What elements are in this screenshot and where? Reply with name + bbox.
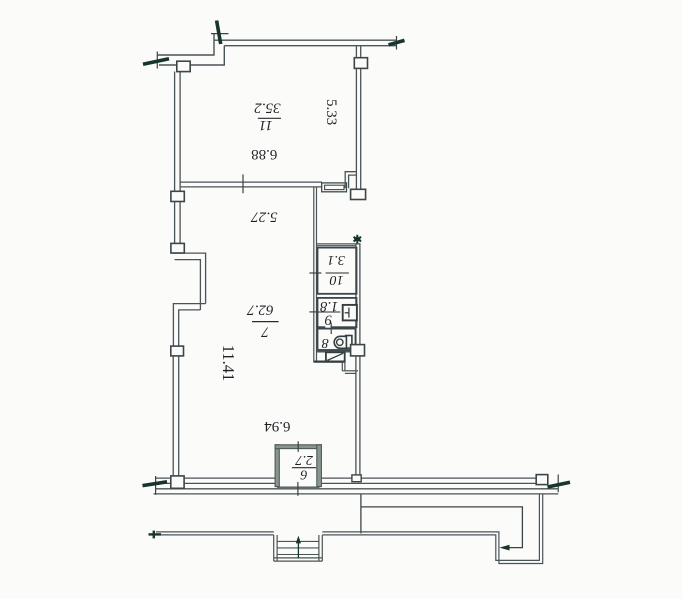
svg-text:11.41: 11.41 — [219, 345, 238, 382]
svg-text:5.33: 5.33 — [323, 99, 339, 125]
svg-text:6.94: 6.94 — [264, 418, 291, 434]
svg-text:2.7: 2.7 — [294, 452, 313, 467]
svg-text:6: 6 — [300, 466, 307, 481]
svg-text:35.2: 35.2 — [254, 99, 282, 115]
svg-text:62.7: 62.7 — [246, 301, 274, 317]
svg-text:10: 10 — [330, 272, 344, 287]
svg-text:3.1: 3.1 — [327, 252, 346, 267]
svg-text:9: 9 — [324, 312, 332, 328]
svg-text:8: 8 — [322, 335, 329, 350]
svg-text:6.88: 6.88 — [251, 146, 277, 162]
svg-text:11: 11 — [259, 117, 273, 133]
svg-text:5.27: 5.27 — [250, 209, 278, 225]
